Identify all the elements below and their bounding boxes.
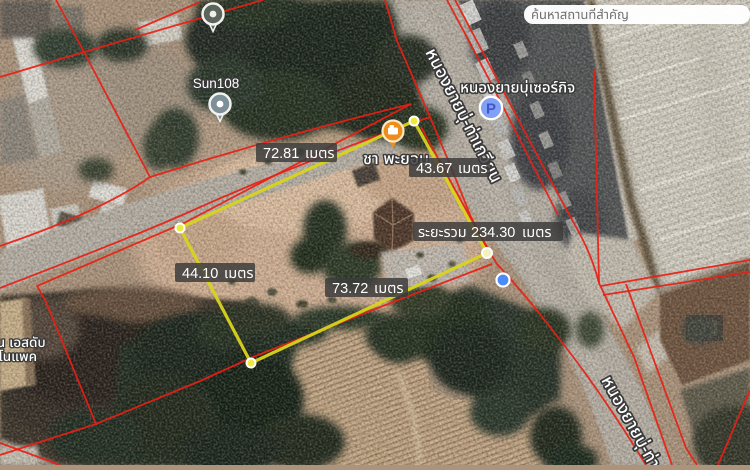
svg-text:234.30: 234.30 <box>471 225 515 241</box>
svg-text:P: P <box>486 101 496 118</box>
svg-text:43.67: 43.67 <box>416 161 452 177</box>
svg-text:73.72: 73.72 <box>332 281 368 297</box>
svg-text:44.10: 44.10 <box>182 266 218 282</box>
svg-text:Sun108: Sun108 <box>193 76 240 91</box>
svg-text:72.81: 72.81 <box>263 146 299 162</box>
